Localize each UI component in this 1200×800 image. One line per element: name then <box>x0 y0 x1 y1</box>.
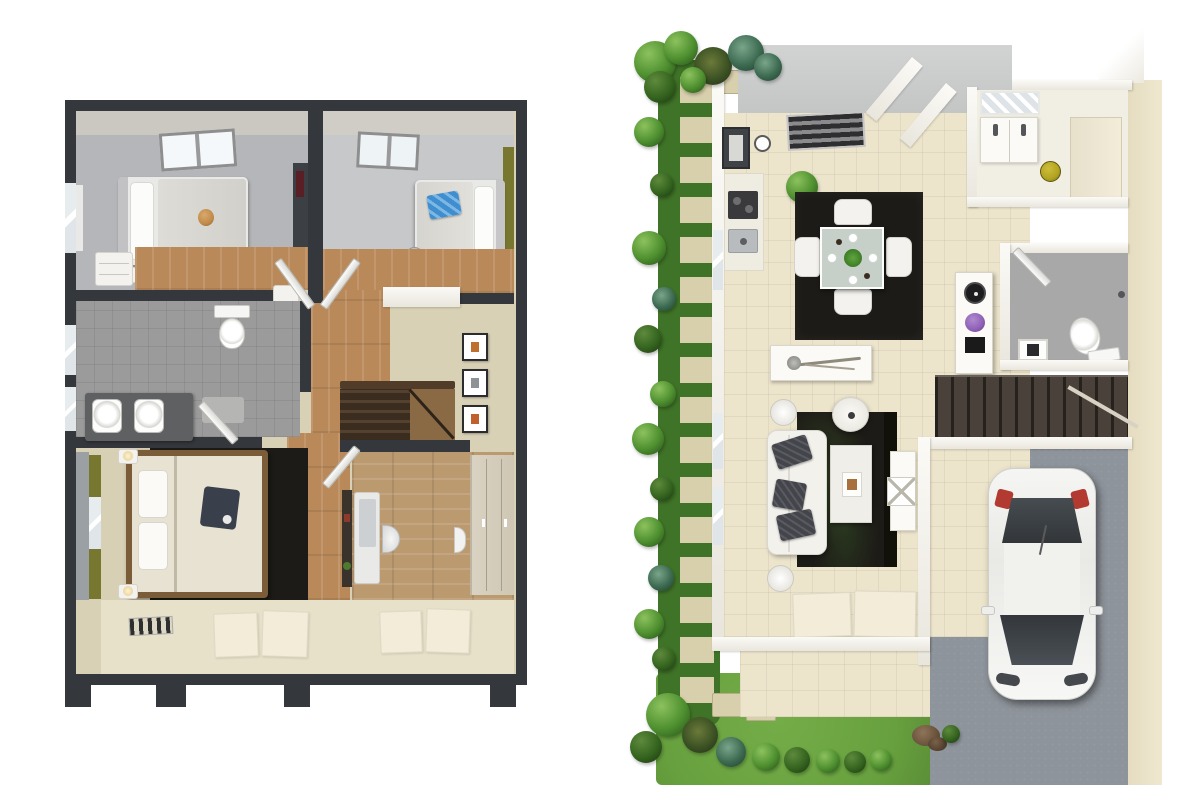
plate <box>868 253 878 263</box>
plate <box>827 253 837 263</box>
wall-picture-frame <box>722 127 750 169</box>
floor-mat <box>425 608 471 654</box>
floor-lamp-shade <box>832 397 869 432</box>
garage-left-wall <box>918 437 930 665</box>
shower-head <box>1118 291 1125 298</box>
ground-floor-plan <box>628 25 1168 785</box>
garden-bush <box>816 749 840 773</box>
roof-gable-corner <box>1076 25 1144 83</box>
picture-frame <box>462 405 488 433</box>
wardrobe-handle <box>482 519 485 527</box>
sofa-cushion <box>772 479 807 512</box>
windshield <box>1000 615 1084 665</box>
picture-frame <box>462 369 488 397</box>
clothes-on-bed <box>200 486 241 530</box>
blanket-fold <box>174 456 177 592</box>
toilet-tank <box>214 305 250 318</box>
spiky-plant <box>754 53 782 81</box>
table-art-book <box>842 472 862 497</box>
wall-footing <box>490 685 516 707</box>
ceiling-vent-skylight <box>786 111 866 151</box>
bed-pillow <box>138 470 168 518</box>
car-roof <box>1004 543 1080 615</box>
garden-bush <box>644 71 676 103</box>
floor-mat <box>261 610 309 658</box>
living-window <box>713 413 723 469</box>
garden-bush <box>634 117 664 147</box>
spiky-plant <box>716 737 746 767</box>
wardrobe-door-seam <box>486 459 487 591</box>
burner <box>733 197 741 205</box>
living-window <box>713 487 723 545</box>
toilet <box>212 305 252 351</box>
entry-doormat <box>887 477 916 506</box>
dresser-drawer-line <box>99 263 129 264</box>
patio-tiles <box>740 651 936 717</box>
side-mirror <box>981 606 995 615</box>
decor-knob <box>787 356 801 370</box>
wall-clock <box>754 135 771 152</box>
palm-plant <box>682 717 718 753</box>
bedroom-left-window <box>65 183 76 253</box>
dining-chair-left <box>794 237 820 277</box>
white-car <box>988 468 1096 700</box>
frame-art <box>471 414 479 424</box>
garden-bush <box>632 423 664 455</box>
bathroom-top-wall <box>65 290 273 301</box>
garden-bush <box>650 477 674 501</box>
upper-floor-plan <box>62 97 530 712</box>
mirror-inner <box>1027 344 1039 356</box>
living-window <box>713 230 723 290</box>
cup <box>836 239 842 245</box>
accent-wall-green <box>89 455 101 497</box>
staircase <box>935 375 1128 437</box>
garden-bush <box>632 231 666 265</box>
purple-flowers <box>965 313 985 332</box>
kitchen-sink <box>728 229 758 253</box>
centerpiece-plant <box>844 249 862 267</box>
staircase-landing <box>410 389 455 440</box>
toilet <box>1068 313 1120 365</box>
bed-pillow <box>138 522 168 570</box>
wardrobe <box>470 455 514 595</box>
right-boundary-wall <box>1128 80 1162 785</box>
window-sill <box>76 185 83 251</box>
bathroom-window-slats <box>980 91 1040 115</box>
kitchen-counter <box>724 173 764 271</box>
burner <box>745 205 753 213</box>
bathroom-bottom-wall <box>967 197 1128 207</box>
book-red <box>344 514 350 522</box>
house-bottom-wall <box>712 637 930 651</box>
cup <box>864 273 870 279</box>
garden-bush <box>870 749 892 771</box>
garden-bush <box>630 731 662 763</box>
faucet <box>993 124 998 136</box>
garden-bush <box>844 751 866 773</box>
table-lamp <box>123 586 133 596</box>
sink-basin <box>134 399 164 433</box>
stair-handrail <box>1067 385 1138 428</box>
wall-footing <box>156 685 186 707</box>
bookshelf <box>342 490 352 587</box>
shrub <box>942 725 960 743</box>
plant-small <box>343 562 351 570</box>
stepping-stone-path <box>680 77 714 717</box>
garden-bush <box>634 517 664 547</box>
round-ottoman <box>770 399 797 426</box>
lamp-stem <box>848 412 855 419</box>
garden-bush <box>784 747 810 773</box>
frame-art <box>471 342 479 352</box>
bathroom-right-wall <box>300 301 311 392</box>
vanity-divider <box>1009 120 1010 162</box>
skylight-mullion <box>195 134 201 166</box>
bathroom-vanity <box>980 117 1038 163</box>
stepping-stone <box>712 693 742 717</box>
wardrobe-handle <box>504 519 507 527</box>
double-sink-vanity <box>85 393 193 441</box>
garden-bush <box>650 173 674 197</box>
clock-face <box>964 282 986 304</box>
bedroom-divider-wall <box>308 100 323 303</box>
frame-art <box>729 135 743 161</box>
house-top-wall-right <box>1012 80 1132 90</box>
side-mirror <box>1089 606 1103 615</box>
stair-rail-diagonal <box>408 388 454 439</box>
stair-railing <box>340 381 455 389</box>
dresser <box>95 252 133 286</box>
skylight-mullion <box>386 136 392 166</box>
art-detail <box>847 479 857 490</box>
skylight-window <box>356 131 420 170</box>
garage-top-wall <box>930 437 1132 449</box>
faucet <box>1021 124 1026 136</box>
picture-frame <box>462 333 488 361</box>
skylight-window <box>159 128 237 171</box>
pedestal-slot <box>965 337 985 353</box>
wc-bottom-wall <box>1000 360 1128 370</box>
round-yellow-basket <box>1040 161 1061 182</box>
master-window <box>89 497 101 549</box>
garden-bush <box>650 381 676 407</box>
clock-center <box>974 292 978 296</box>
page-canvas: { "scene": { "description": "Two 3D top-… <box>0 0 1200 800</box>
console-table <box>770 345 872 381</box>
accent-wall-green <box>89 549 101 599</box>
dining-chair-top <box>834 199 872 225</box>
threshold-tile <box>854 590 917 637</box>
sink-drain <box>740 238 747 245</box>
hanging-clothes-red <box>296 171 304 197</box>
dresser-drawer-line <box>99 274 129 275</box>
cooktop <box>728 191 758 219</box>
teddy-bear <box>198 209 214 226</box>
table-lamp <box>123 451 133 461</box>
decor-branch <box>805 364 855 370</box>
bedroom-right-ceiling-band <box>323 111 514 135</box>
round-ottoman <box>767 565 794 592</box>
double-bed <box>126 450 268 598</box>
bathroom-window <box>65 387 76 431</box>
tall-cabinet <box>1070 117 1122 205</box>
dining-chair-bottom <box>834 289 872 315</box>
floor-vent-mat <box>129 616 174 636</box>
spiky-plant <box>648 565 674 591</box>
glass-dining-table <box>820 227 884 289</box>
garden-bush <box>680 67 706 93</box>
wc-left-wall <box>1000 243 1010 370</box>
bathroom-left-wall <box>967 87 977 207</box>
wall-mirror-frame <box>1018 339 1048 361</box>
clothes-detail <box>222 514 232 524</box>
coffee-table <box>830 445 872 523</box>
toilet-bowl <box>219 318 245 349</box>
garden-bush <box>652 647 676 671</box>
spiky-plant <box>652 287 676 311</box>
floor-mat <box>379 610 422 653</box>
garden-bush <box>752 743 780 771</box>
stairwell-half-wall <box>383 287 460 307</box>
wardrobe-door-seam <box>501 459 502 591</box>
study-desk <box>354 492 380 584</box>
threshold-tile <box>792 592 852 638</box>
garden-bush <box>664 31 698 65</box>
staircase-down <box>340 389 410 440</box>
garden-bush <box>634 609 664 639</box>
plate <box>848 233 858 243</box>
dining-chair-right <box>886 237 912 277</box>
desk-top-inset <box>359 499 376 547</box>
wall-footing <box>284 685 310 707</box>
plate <box>848 275 858 285</box>
display-pedestal <box>955 272 993 374</box>
wall-footing <box>65 685 91 707</box>
floor-mat <box>213 612 259 658</box>
master-wall-face <box>76 452 89 600</box>
wardrobe-left <box>293 163 308 249</box>
garden-bush <box>634 325 662 353</box>
sink-basin <box>92 399 122 433</box>
bathroom-window <box>65 325 76 375</box>
frame-art <box>471 378 479 388</box>
